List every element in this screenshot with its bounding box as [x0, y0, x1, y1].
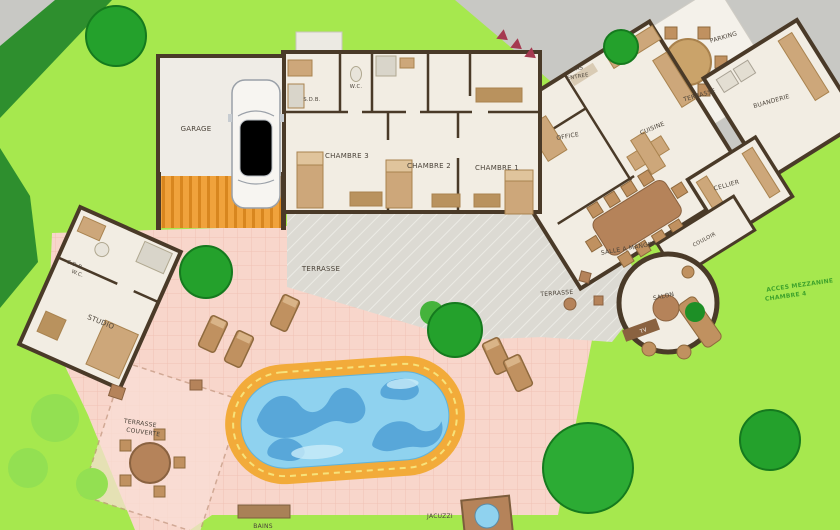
tree-icon: [86, 6, 146, 66]
label-chambre3: CHAMBRE 3: [325, 152, 369, 160]
bush-icon: [31, 394, 79, 442]
label-jacuzzi: JACUZZI: [426, 513, 453, 520]
wardrobe-icon: [432, 194, 460, 207]
planter-icon: [190, 380, 202, 390]
tree-icon: [740, 410, 800, 470]
toilet-icon: [351, 67, 362, 82]
label-wc: W.C.: [350, 84, 363, 90]
wing-bedrooms: [283, 32, 540, 214]
armchair-icon: [677, 345, 691, 359]
bathtub-icon: [288, 84, 304, 108]
vanity-icon: [288, 60, 312, 76]
hall-closet: [476, 88, 522, 102]
label-terrasse-sud: TERRASSE: [301, 265, 340, 273]
tree-icon: [543, 423, 633, 513]
pouf-icon: [682, 266, 694, 278]
label-garage: GARAGE: [181, 125, 212, 133]
armchair-icon: [642, 342, 656, 356]
tree-icon: [604, 30, 638, 64]
bench-icon: [238, 505, 290, 518]
porch: [296, 32, 342, 52]
sink-icon: [400, 58, 414, 68]
wardrobe-icon: [350, 192, 382, 206]
jacuzzi-icon: [461, 496, 513, 530]
car-icon: [228, 80, 284, 208]
bush-icon: [685, 302, 705, 322]
pool: [221, 352, 469, 488]
tree-icon: [180, 246, 232, 298]
floor-plan-image: GARAGE S.D.B. W.C. CHAMBRE 3 CHAMBRE 2 C…: [0, 0, 840, 530]
label-bains: BAINS: [253, 523, 273, 530]
tree-icon: [428, 303, 482, 357]
label-chambre2: CHAMBRE 2: [407, 162, 451, 170]
site-plan: GARAGE S.D.B. W.C. CHAMBRE 3 CHAMBRE 2 C…: [0, 0, 840, 530]
shower-icon: [376, 56, 396, 76]
bush-icon: [76, 468, 108, 500]
wardrobe-icon: [474, 194, 500, 207]
label-chambre1: CHAMBRE 1: [475, 164, 519, 172]
garage: [156, 56, 286, 230]
bush-icon: [8, 448, 48, 488]
label-sdb: S.D.B.: [303, 97, 320, 103]
